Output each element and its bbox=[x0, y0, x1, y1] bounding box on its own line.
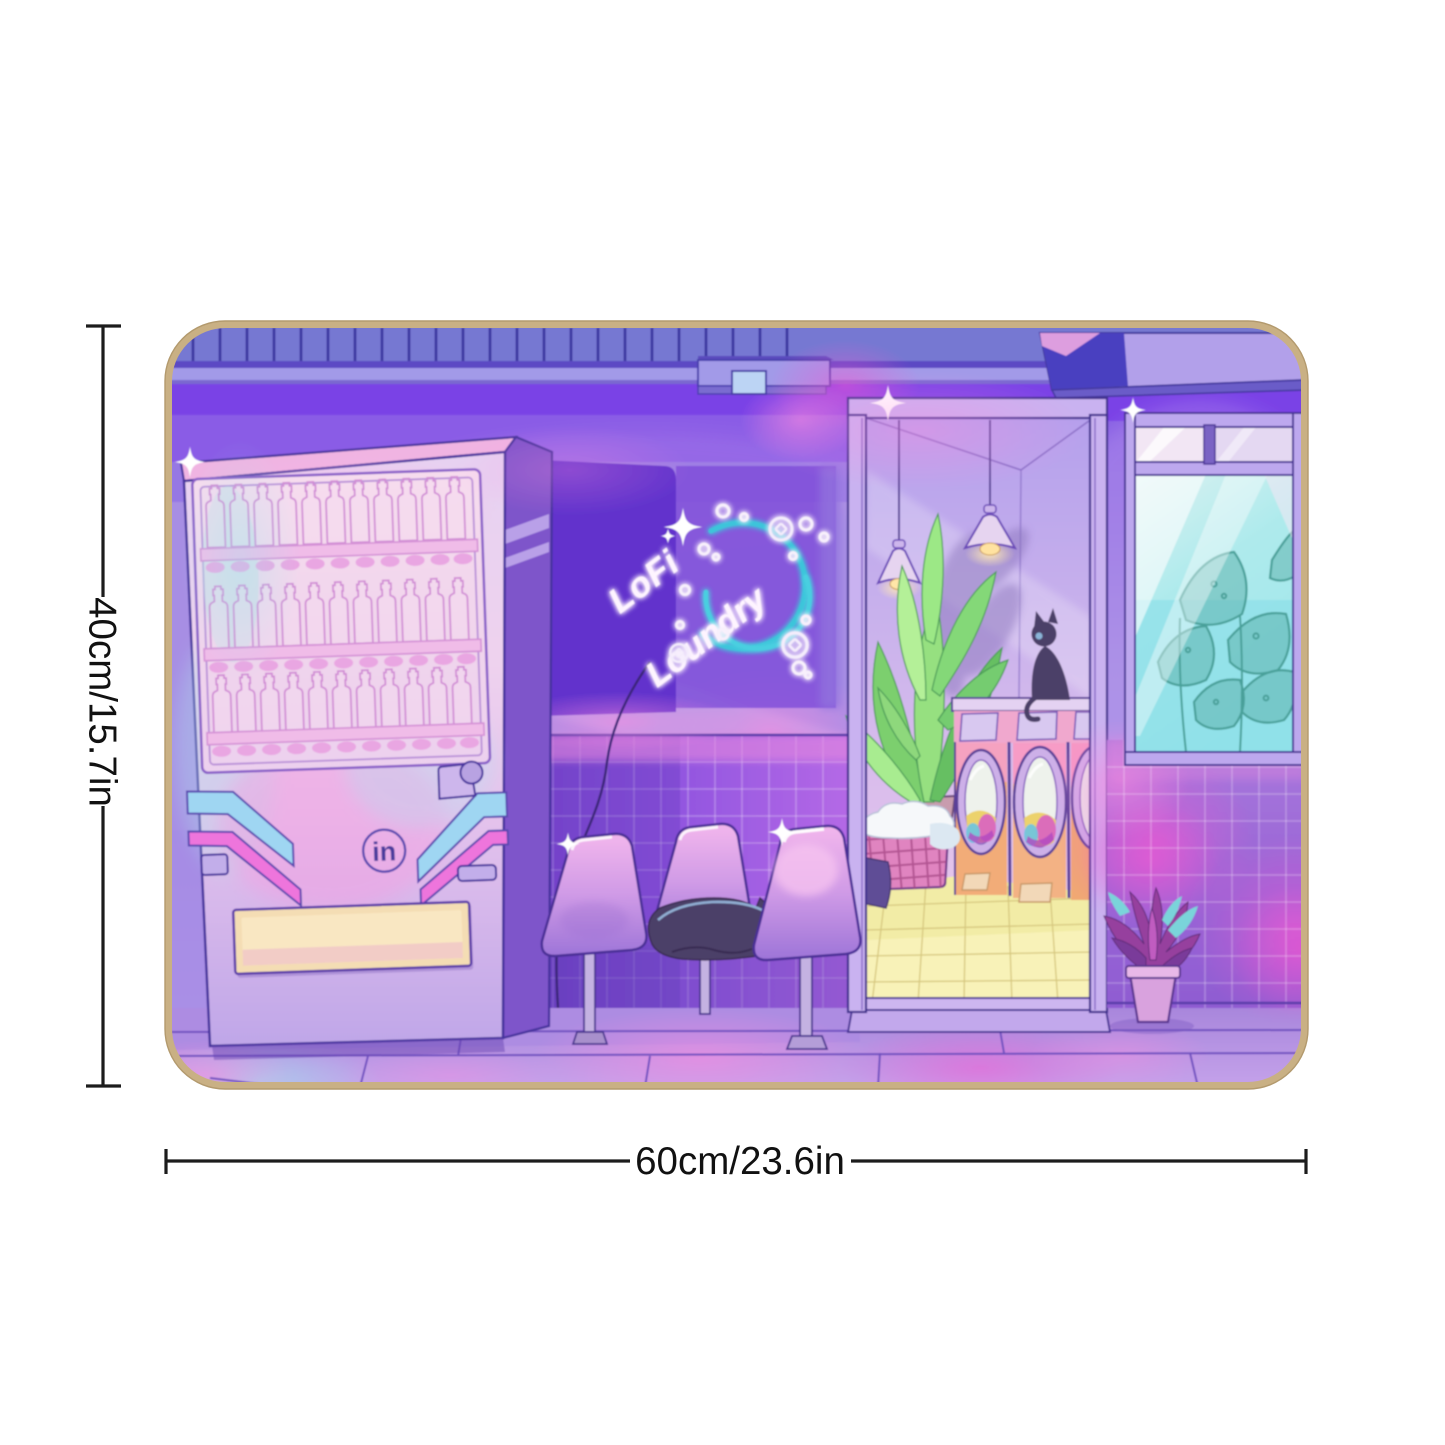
svg-text:40cm/15.7in: 40cm/15.7in bbox=[81, 597, 124, 807]
svg-text:in: in bbox=[372, 836, 397, 867]
svg-text:60cm/23.6in: 60cm/23.6in bbox=[635, 1140, 845, 1183]
